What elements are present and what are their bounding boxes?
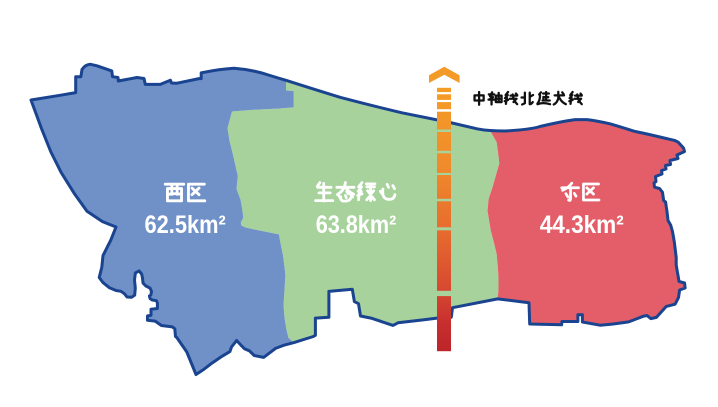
- svg-text:62.5km²: 62.5km²: [145, 211, 226, 239]
- svg-text:44.3km²: 44.3km²: [540, 211, 624, 239]
- svg-text:63.8km²: 63.8km²: [316, 211, 397, 239]
